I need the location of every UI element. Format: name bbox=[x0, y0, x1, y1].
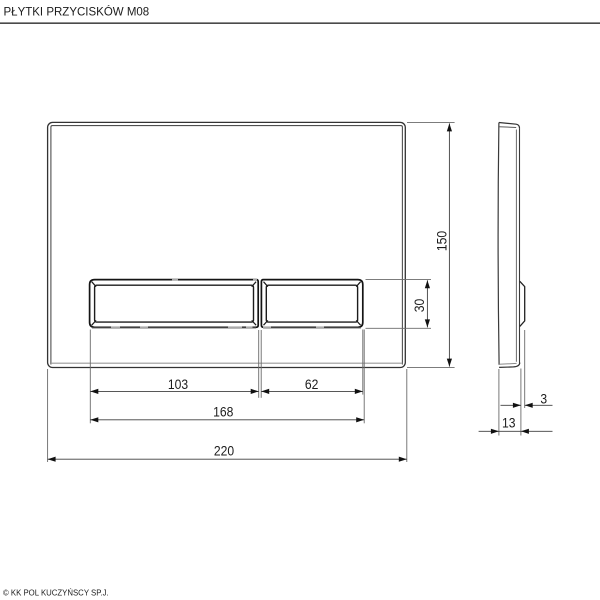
svg-text:3: 3 bbox=[540, 391, 547, 407]
svg-text:© KK POL KUCZYŃSCY SP.J.: © KK POL KUCZYŃSCY SP.J. bbox=[3, 588, 109, 597]
svg-text:220: 220 bbox=[214, 443, 234, 459]
svg-text:13: 13 bbox=[502, 415, 516, 431]
svg-text:150: 150 bbox=[434, 231, 450, 251]
svg-text:PŁYTKI PRZYCISKÓW M08: PŁYTKI PRZYCISKÓW M08 bbox=[4, 5, 150, 18]
svg-text:62: 62 bbox=[305, 376, 319, 392]
svg-text:30: 30 bbox=[411, 299, 427, 313]
svg-text:103: 103 bbox=[168, 376, 188, 392]
svg-text:168: 168 bbox=[213, 404, 233, 420]
